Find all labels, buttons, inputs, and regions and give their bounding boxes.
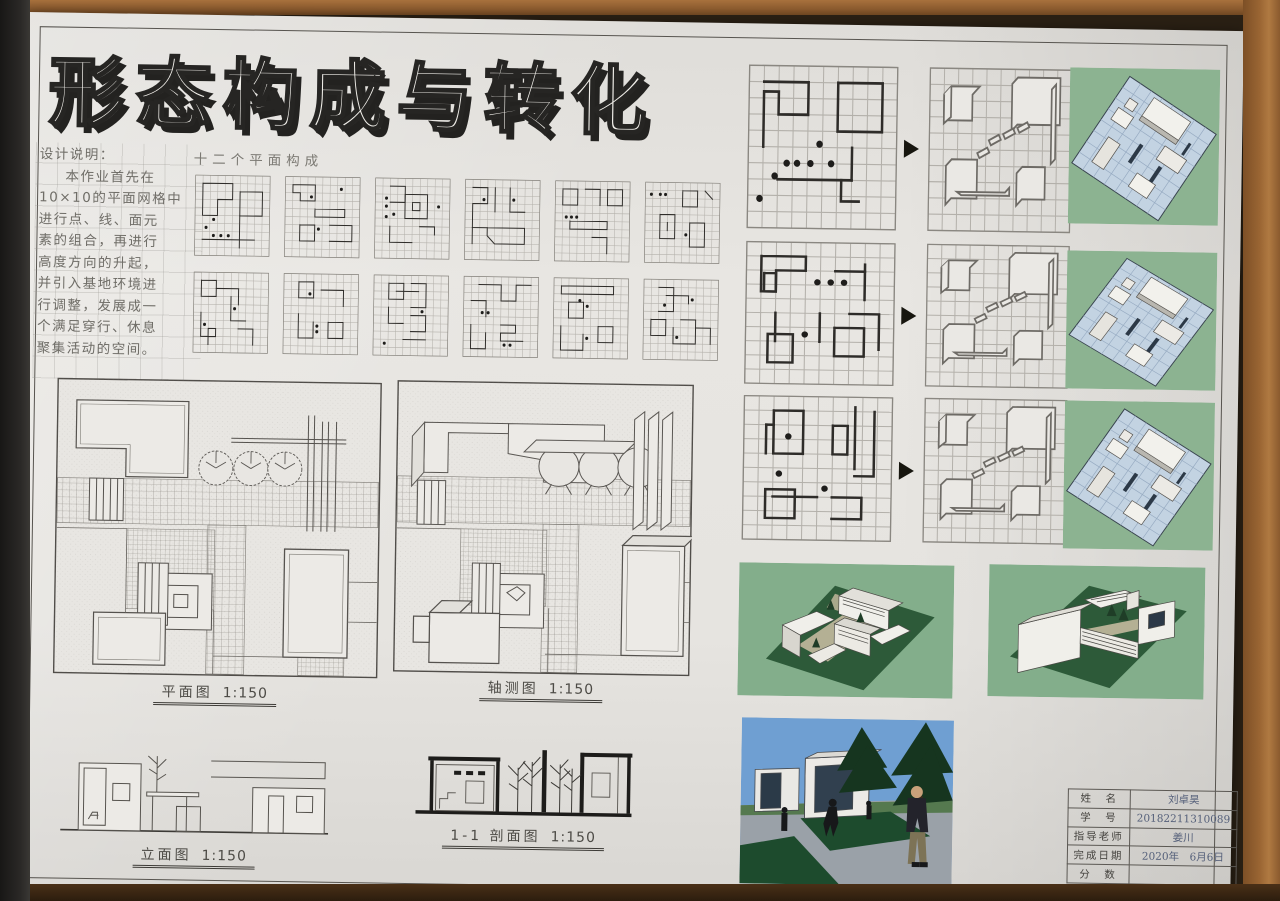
site-plan-drawing [53,378,383,679]
photographed-design-board: 形态构成与转化 设计说明： 本作业首先在10×10的平面网格中进行点、线、面元素… [0,0,1280,901]
title-block-table: 姓 名刘卓昊学 号20182211310089指导老师姜川完成日期2020年 6… [1066,788,1237,886]
plane-composition-grid [642,180,722,266]
title-block-label: 指导老师 [1068,827,1130,847]
plane-composition-grid [192,173,272,259]
title-block-label: 姓 名 [1068,789,1130,809]
massing-render-2 [1065,250,1217,390]
arrow-icon [899,462,914,480]
arrow-icon [904,140,919,158]
section-drawing [413,722,635,823]
title-block-row: 分 数 [1067,864,1236,885]
twelve-plane-composition-grids [190,173,727,387]
design-note-line: 本作业首先在 [39,166,199,190]
design-note-line: 行调整，发展成一 [37,295,197,319]
design-notes-heading: 设计说明： [40,144,200,168]
title-block-value: 20182211310089 [1130,809,1237,829]
wood-frame-right [1243,0,1280,901]
design-note-line: 个满足穿行、休息 [37,316,197,340]
plane-composition-grid [371,272,451,358]
plane-composition-grid [641,277,721,363]
design-note-line: 进行点、线、面元 [39,209,199,233]
title-block-value [1129,865,1236,885]
arrow-icon [901,307,916,325]
design-note-line: 聚集活动的空间。 [37,338,197,362]
transform-plan-grid-2 [740,237,899,389]
aerial-render-right [987,564,1205,699]
wall-edge-left [0,0,30,901]
title-block-label: 分 数 [1067,864,1129,884]
transform-plan-grid-1 [743,60,903,234]
massing-render-3 [1063,400,1215,550]
elevation-caption: 立面图1:150 [60,843,328,867]
presentation-sheet: 形态构成与转化 设计说明： 本作业首先在10×10的平面网格中进行点、线、面元素… [14,12,1244,901]
design-note-line: 并引入基地环境进 [38,273,198,297]
elevation-drawing [60,737,330,843]
section-caption: 1-1 剖面图1:150 [413,824,633,847]
perspective-render [739,717,954,886]
title-block-value: 姜川 [1130,828,1237,848]
title-block-value: 2020年 6月6日 [1129,846,1236,866]
plane-composition-grid [281,271,361,357]
transform-plan-grid-3 [738,391,897,545]
plane-composition-grid [552,178,632,264]
title-block-label: 完成日期 [1067,845,1129,865]
design-notes: 设计说明： 本作业首先在10×10的平面网格中进行点、线、面元素的组合，再进行高… [32,142,204,381]
plane-composition-grid [462,177,542,263]
aerial-render-left [737,562,954,698]
design-note-line: 10×10的平面网格中 [39,187,199,211]
plane-composition-grid [282,174,362,260]
plane-composition-grid [551,275,631,361]
title-block-label: 学 号 [1068,808,1130,828]
transform-axon-sketch-2 [921,240,1073,392]
plane-composition-grid [191,270,271,356]
massing-render-1 [1068,67,1220,225]
axonometric-drawing [393,380,695,677]
design-notes-body: 本作业首先在10×10的平面网格中进行点、线、面元素的组合，再进行高度方向的升起… [37,166,200,362]
design-note-line: 高度方向的升起， [38,252,198,276]
plane-compositions-label: 十二个平面构成 [194,148,324,170]
title-block-value: 刘卓昊 [1130,790,1237,810]
plane-composition-grid [461,274,541,360]
wood-frame-top [0,0,1280,15]
plane-composition-grid [372,175,452,261]
design-note-line: 素的组合，再进行 [38,230,198,254]
transform-axon-sketch-3 [919,394,1071,548]
wood-frame-bottom [0,884,1280,901]
transform-axon-sketch-1 [924,63,1077,237]
